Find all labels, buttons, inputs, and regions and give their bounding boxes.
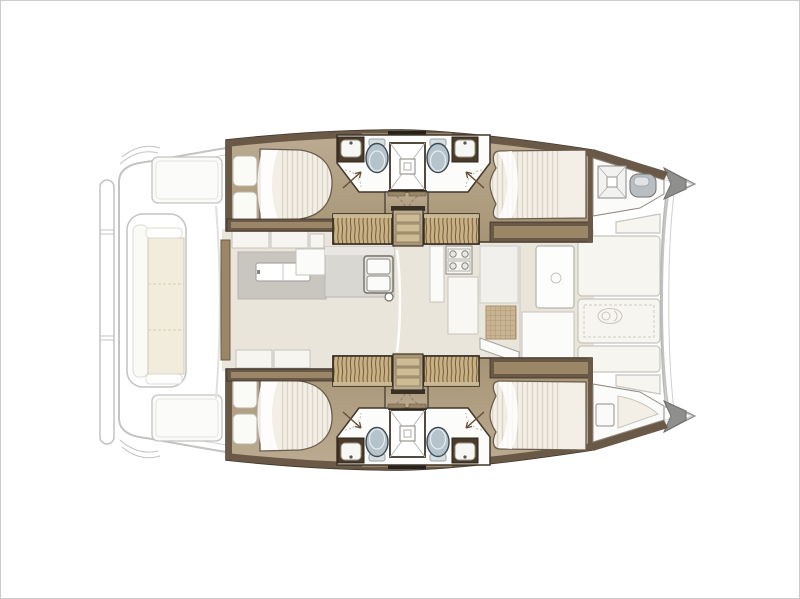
- locker-face: [231, 222, 333, 228]
- central-stairs: [391, 206, 425, 246]
- pillow: [233, 156, 257, 186]
- door-leaf: [388, 192, 405, 196]
- door-leaf: [409, 192, 426, 196]
- floor-plan-canvas: [1, 1, 799, 598]
- tall-cabinet: [430, 246, 444, 302]
- sofa-seat: [274, 350, 310, 368]
- cockpit-bench: [127, 214, 186, 387]
- forward-cabinet: [480, 246, 518, 303]
- bench-armrest-top: [146, 228, 182, 238]
- toilet: [427, 139, 449, 173]
- companionway-steps: [424, 214, 479, 244]
- steps-rail: [333, 214, 392, 218]
- saloon: [221, 229, 594, 371]
- floor-plan-page: [0, 0, 800, 599]
- deck-locker-port: [152, 157, 222, 203]
- sofa-seat: [236, 350, 272, 368]
- rear-sliding-door: [221, 240, 230, 360]
- sofa-seat: [232, 231, 269, 248]
- sofa-armrest: [310, 234, 324, 248]
- counter-highlight: [325, 247, 394, 255]
- windlass: [630, 174, 656, 197]
- toilet: [366, 139, 388, 173]
- forward-door-panel: [536, 246, 574, 308]
- steps-rail: [424, 214, 479, 218]
- forepeak-partition: [588, 150, 593, 242]
- stove: [446, 246, 472, 274]
- storage-box: [596, 404, 614, 426]
- bench-backrest: [133, 225, 148, 377]
- bench-seat-cushion: [148, 238, 184, 374]
- sofa-seat: [271, 231, 308, 248]
- stern-steps-bottom: [120, 440, 160, 458]
- bench-armrest-bottom: [146, 374, 182, 384]
- deck-locker-starboard: [152, 395, 222, 441]
- sink-basin: [367, 276, 390, 291]
- galley-cabinet: [296, 249, 325, 275]
- fridge: [448, 277, 478, 334]
- companionway-steps: [333, 214, 392, 244]
- shower: [388, 143, 427, 194]
- sink-faucet: [463, 141, 466, 144]
- entry-mat: [486, 306, 516, 339]
- platform-front-edge-outer: [669, 194, 674, 410]
- sink-basin: [367, 259, 390, 274]
- sunpad-panel: [578, 236, 660, 296]
- stern-transom-strip: [100, 180, 114, 444]
- sunpad-stitched-cushion: [578, 299, 660, 343]
- cabin-side-wall: [226, 145, 232, 231]
- deck-hatch: [598, 166, 626, 198]
- forward-cabin: [490, 148, 593, 242]
- locker-face: [494, 226, 588, 238]
- shower-drain: [400, 159, 415, 174]
- sink-faucet: [349, 141, 352, 144]
- galley-faucet: [385, 293, 393, 301]
